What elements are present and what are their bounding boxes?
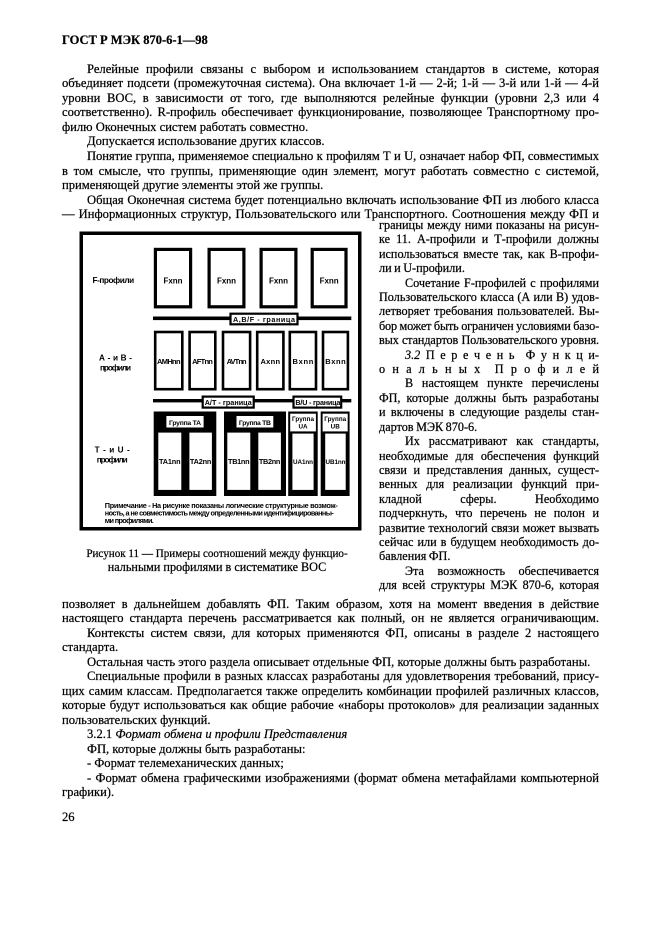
- svg-text:Группа ТА: Группа ТА: [169, 420, 201, 427]
- svg-text:AMHnn: AMHnn: [157, 357, 181, 366]
- svg-text:TB1nn: TB1nn: [228, 457, 250, 466]
- svg-text:А - и В -: А - и В -: [99, 354, 132, 363]
- svg-text:ми профилями.: ми профилями.: [105, 516, 154, 525]
- svg-text:Axnn: Axnn: [260, 357, 280, 366]
- svg-text:TA1nn: TA1nn: [159, 457, 181, 466]
- svg-text:Т - и U -: Т - и U -: [95, 446, 130, 455]
- svg-text:Bxnn: Bxnn: [293, 357, 314, 366]
- svg-text:Группа: Группа: [324, 416, 346, 423]
- svg-text:UB: UB: [331, 424, 341, 431]
- svg-text:Fxnn: Fxnn: [320, 276, 339, 285]
- svg-text:AVTnn: AVTnn: [227, 357, 247, 366]
- svg-text:B/U - граница: B/U - граница: [295, 398, 341, 407]
- svg-text:TA2nn: TA2nn: [190, 457, 212, 466]
- svg-text:профили: профили: [100, 364, 131, 373]
- svg-text:UA1nn: UA1nn: [293, 459, 313, 466]
- svg-text:UA: UA: [298, 424, 308, 431]
- svg-text:Fxnn: Fxnn: [164, 276, 183, 285]
- svg-text:Fxnn: Fxnn: [217, 276, 236, 285]
- svg-text:Группа: Группа: [292, 416, 314, 423]
- svg-text:F-профили: F-профили: [93, 276, 135, 285]
- svg-text:Группа ТВ: Группа ТВ: [239, 420, 271, 427]
- svg-text:профили: профили: [97, 456, 128, 465]
- svg-text:TB2nn: TB2nn: [259, 457, 281, 466]
- svg-text:Fxnn: Fxnn: [269, 276, 288, 285]
- svg-text:AFTnn: AFTnn: [192, 357, 213, 366]
- svg-text:A,B/F - граница: A,B/F - граница: [233, 315, 296, 324]
- svg-text:А/Т - граница: А/Т - граница: [205, 398, 253, 407]
- svg-text:UB1nn: UB1nn: [326, 459, 346, 466]
- svg-text:Bxnn: Bxnn: [325, 357, 346, 366]
